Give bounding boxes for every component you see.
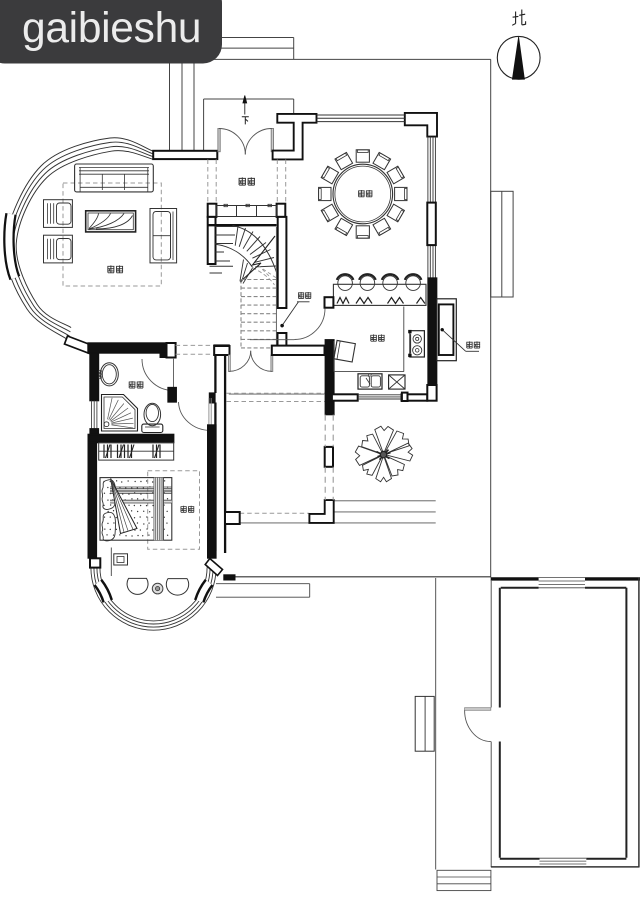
svg-text:gaibieshu: gaibieshu (22, 5, 201, 52)
